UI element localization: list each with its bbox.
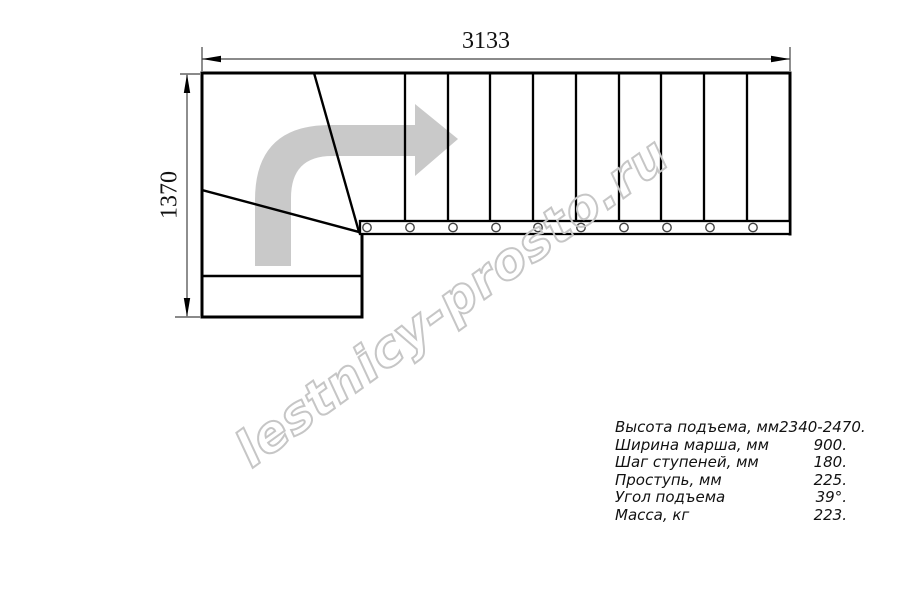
spec-value: 2340-2470. bbox=[779, 419, 866, 437]
spec-row-rise-height: Высота подъема, мм 2340-2470. bbox=[615, 419, 847, 437]
spec-row-step-pitch: Шаг ступеней, мм 180. bbox=[615, 454, 847, 472]
spec-label: Высота подъема, мм bbox=[615, 419, 779, 437]
spec-row-flight-width: Ширина марша, мм 900. bbox=[615, 437, 847, 455]
spec-table: Высота подъема, мм 2340-2470. Ширина мар… bbox=[615, 419, 847, 524]
spec-label: Ширина марша, мм bbox=[615, 437, 769, 455]
spec-value: 225. bbox=[814, 472, 847, 490]
spec-value: 900. bbox=[814, 437, 847, 455]
spec-label: Угол подъема bbox=[615, 489, 725, 507]
stair-plan-page: 3133 1370 lestnicy-prosto.ru Высота подъ… bbox=[0, 0, 900, 600]
height-dimension-value: 1370 bbox=[157, 171, 184, 219]
stringer-rail bbox=[360, 221, 790, 234]
width-dimension-value: 3133 bbox=[462, 28, 510, 55]
spec-value: 223. bbox=[814, 507, 847, 525]
spec-row-tread: Проступь, мм 225. bbox=[615, 472, 847, 490]
spec-label: Масса, кг bbox=[615, 507, 689, 525]
spec-row-rise-angle: Угол подъема 39°. bbox=[615, 489, 847, 507]
spec-label: Проступь, мм bbox=[615, 472, 722, 490]
direction-arrow-icon bbox=[255, 104, 458, 266]
tread-lines bbox=[405, 73, 747, 221]
spec-value: 39°. bbox=[816, 489, 847, 507]
spec-value: 180. bbox=[814, 454, 847, 472]
spec-row-mass: Масса, кг 223. bbox=[615, 507, 847, 525]
spec-label: Шаг ступеней, мм bbox=[615, 454, 759, 472]
